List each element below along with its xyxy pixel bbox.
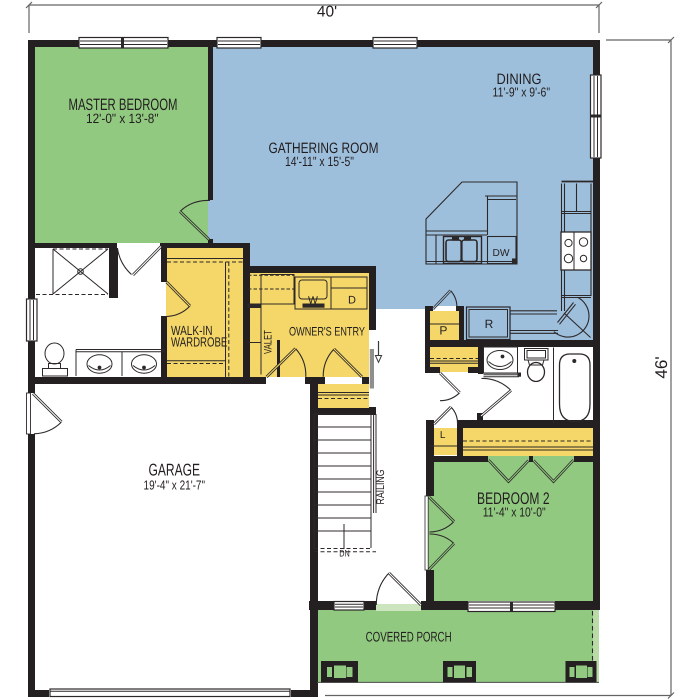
svg-text:12'-0" x 13'-8": 12'-0" x 13'-8" [86, 111, 159, 126]
svg-text:L: L [440, 430, 446, 441]
svg-text:14'-11" x 15'-5": 14'-11" x 15'-5" [285, 154, 354, 169]
svg-text:11'-4" x 10'-0": 11'-4" x 10'-0" [483, 505, 546, 520]
svg-text:WARDROBE: WARDROBE [171, 335, 227, 350]
svg-text:DN: DN [339, 549, 350, 560]
svg-text:R: R [485, 317, 494, 331]
svg-text:RAILING: RAILING [375, 470, 387, 505]
svg-text:40': 40' [317, 3, 337, 20]
svg-text:46': 46' [652, 356, 671, 378]
svg-text:D: D [348, 295, 356, 307]
svg-text:P: P [439, 324, 447, 338]
svg-text:COVERED PORCH: COVERED PORCH [366, 628, 452, 644]
svg-text:VALET: VALET [263, 330, 275, 354]
svg-text:11'-9" x 9'-6": 11'-9" x 9'-6" [493, 85, 551, 100]
svg-text:19'-4" x 21'-7": 19'-4" x 21'-7" [144, 477, 206, 492]
svg-text:DW: DW [493, 248, 511, 259]
svg-text:OWNER'S ENTRY: OWNER'S ENTRY [289, 324, 365, 338]
svg-text:W: W [308, 294, 318, 306]
